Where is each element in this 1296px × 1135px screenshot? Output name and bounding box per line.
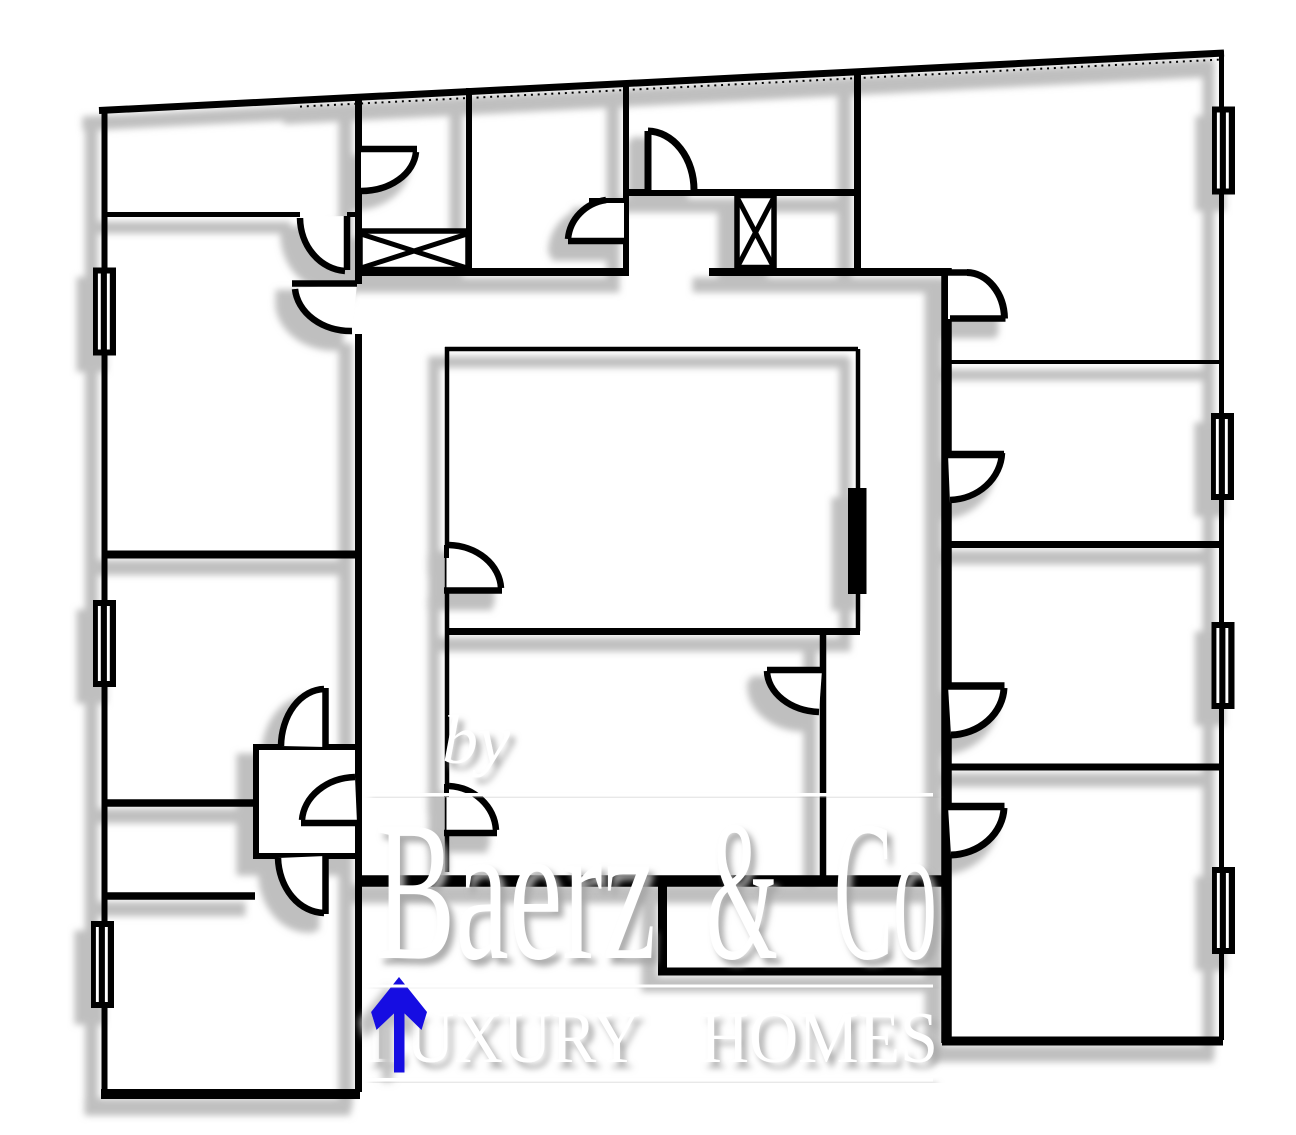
svg-text:Co: Co [834, 781, 937, 1002]
svg-text:Baerz: Baerz [375, 781, 656, 1002]
svg-text:HOMES: HOMES [700, 997, 938, 1078]
svg-text:by: by [442, 702, 510, 778]
svg-text:&: & [706, 781, 778, 1002]
